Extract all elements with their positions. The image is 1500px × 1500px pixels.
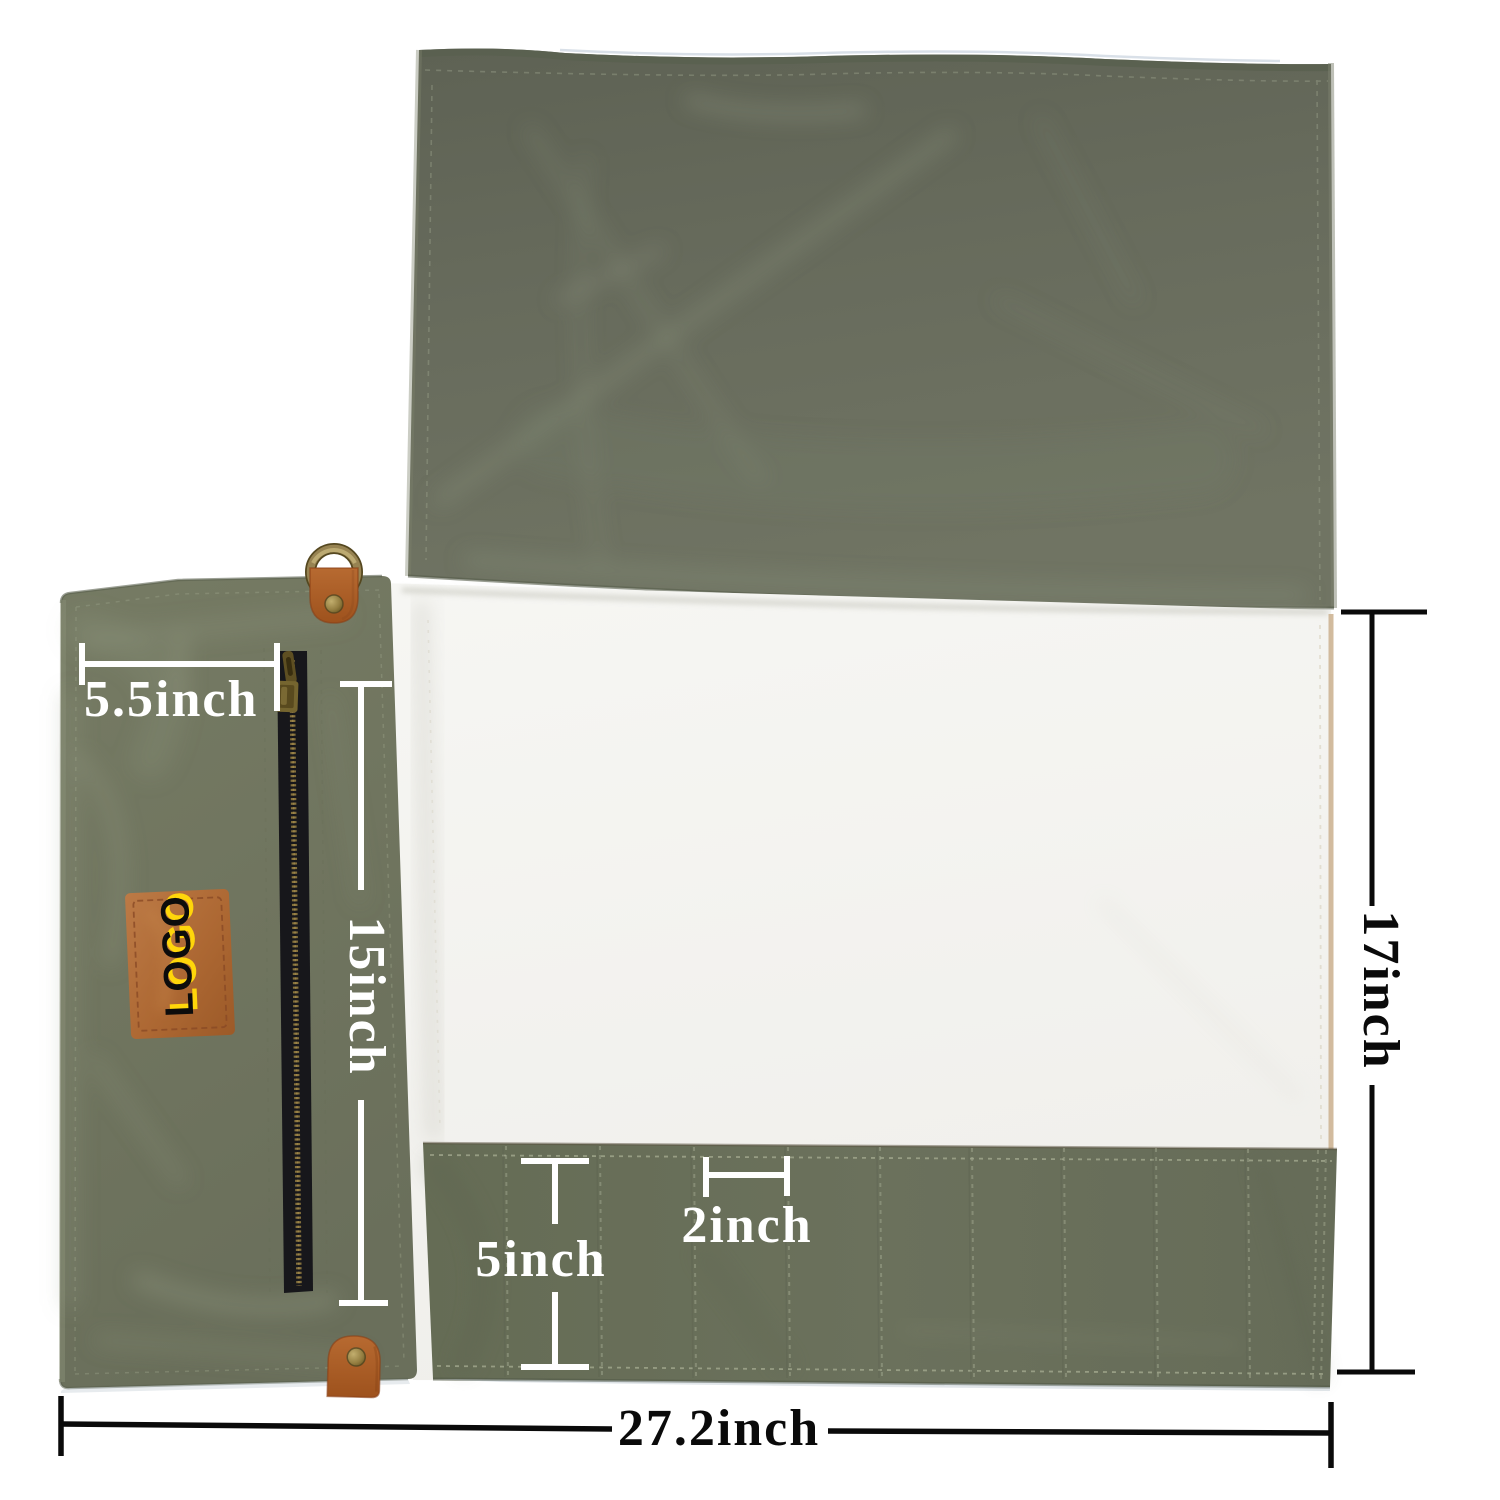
- svg-text:LOGO: LOGO: [153, 894, 202, 1018]
- svg-text:15inch: 15inch: [338, 916, 395, 1075]
- svg-text:5.5inch: 5.5inch: [84, 671, 258, 728]
- svg-text:2inch: 2inch: [681, 1197, 812, 1254]
- svg-text:5inch: 5inch: [475, 1231, 606, 1288]
- svg-text:27.2inch: 27.2inch: [618, 1400, 820, 1457]
- svg-text:17inch: 17inch: [1352, 910, 1409, 1069]
